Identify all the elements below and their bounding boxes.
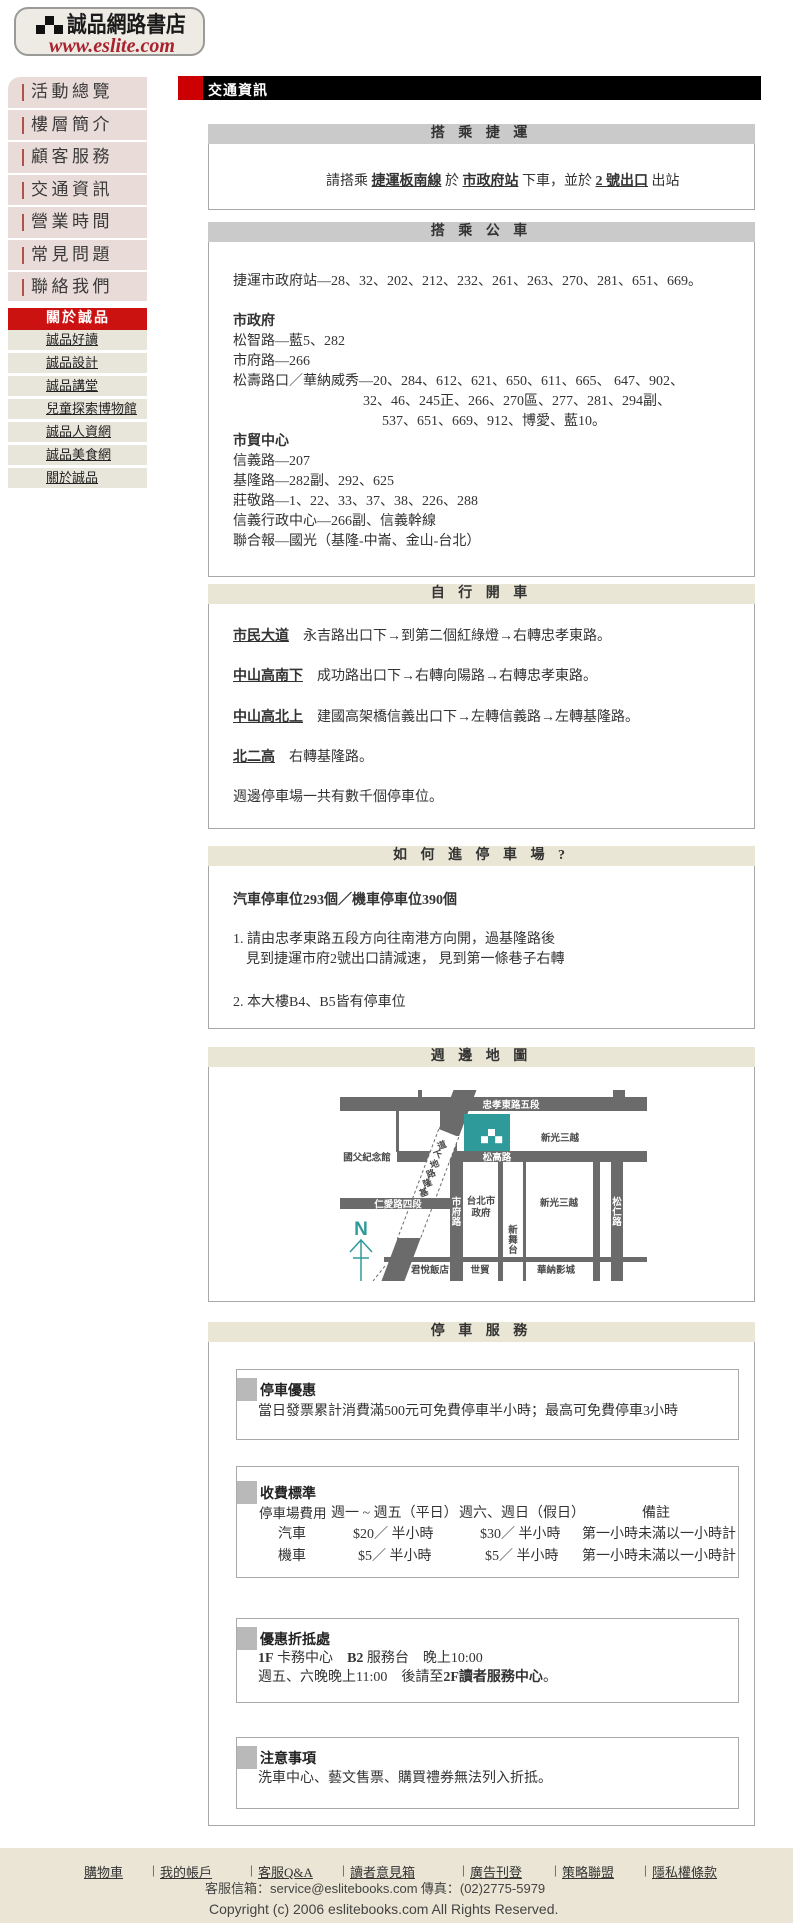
svg-text:忠孝東路五段: 忠孝東路五段	[482, 1099, 540, 1111]
svg-text:世貿: 世貿	[470, 1264, 490, 1276]
svg-text:台北市: 台北市	[467, 1195, 496, 1207]
svg-text:政府: 政府	[471, 1207, 491, 1219]
svg-text:新光三越: 新光三越	[540, 1197, 579, 1209]
svg-text:松高路: 松高路	[483, 1152, 512, 1164]
svg-text:仁愛路四段: 仁愛路四段	[374, 1199, 422, 1211]
svg-text:路: 路	[452, 1216, 462, 1228]
svg-text:國父紀念館: 國父紀念館	[343, 1152, 391, 1164]
svg-text:君悅飯店: 君悅飯店	[411, 1264, 450, 1276]
svg-text:華納影城: 華納影城	[537, 1264, 576, 1276]
svg-text:新光三越: 新光三越	[541, 1132, 580, 1144]
svg-text:台: 台	[508, 1244, 518, 1256]
svg-text:路: 路	[612, 1216, 622, 1228]
svg-text:N: N	[354, 1219, 368, 1240]
